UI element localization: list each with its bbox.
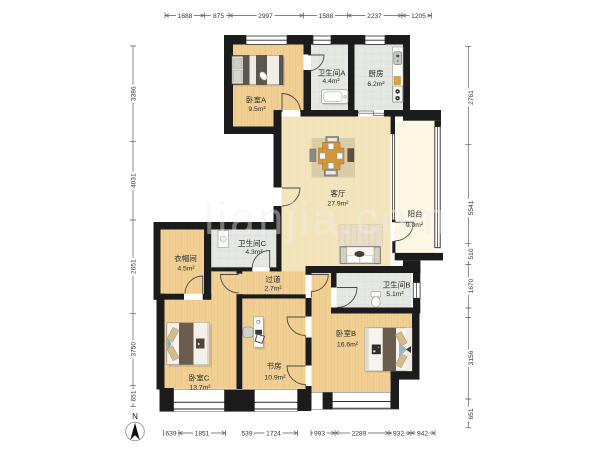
- svg-text:2237: 2237: [367, 13, 382, 20]
- svg-text:4.3m²: 4.3m²: [245, 249, 263, 256]
- svg-text:过道: 过道: [265, 274, 281, 284]
- svg-text:10.9m²: 10.9m²: [264, 375, 286, 382]
- svg-text:2.7m²: 2.7m²: [264, 286, 282, 293]
- svg-text:13.7m²: 13.7m²: [189, 385, 211, 392]
- svg-text:2651: 2651: [130, 259, 137, 274]
- svg-text:卧室B: 卧室B: [336, 328, 356, 338]
- svg-text:1670: 1670: [468, 278, 475, 293]
- svg-text:4031: 4031: [130, 173, 137, 188]
- svg-text:16.6m²: 16.6m²: [337, 342, 359, 349]
- svg-text:875: 875: [213, 13, 224, 20]
- svg-text:客厅: 客厅: [330, 188, 346, 198]
- svg-text:9.0m²: 9.0m²: [406, 222, 424, 229]
- svg-text:6.2m²: 6.2m²: [367, 81, 385, 88]
- svg-text:4.4m²: 4.4m²: [322, 78, 340, 85]
- svg-text:3156: 3156: [468, 350, 475, 365]
- svg-text:993: 993: [314, 431, 325, 438]
- svg-text:942: 942: [417, 431, 428, 438]
- svg-text:3750: 3750: [130, 342, 137, 357]
- svg-text:衣帽间: 衣帽间: [174, 253, 197, 263]
- svg-text:27.9m²: 27.9m²: [327, 201, 349, 208]
- svg-text:卧室C: 卧室C: [189, 373, 210, 383]
- svg-text:1851: 1851: [195, 431, 210, 438]
- svg-text:阳台: 阳台: [407, 209, 423, 219]
- svg-text:5541: 5541: [468, 200, 475, 215]
- svg-text:651: 651: [130, 390, 137, 401]
- svg-text:5.1m²: 5.1m²: [386, 291, 404, 298]
- svg-text:3386: 3386: [130, 86, 137, 101]
- svg-text:书房: 书房: [266, 361, 281, 371]
- svg-text:N: N: [132, 412, 138, 421]
- svg-text:卫生间A: 卫生间A: [318, 68, 347, 78]
- svg-text:卫生间C: 卫生间C: [238, 238, 267, 248]
- svg-text:9.5m²: 9.5m²: [248, 106, 266, 113]
- svg-text:2997: 2997: [258, 13, 273, 20]
- svg-text:1688: 1688: [178, 13, 193, 20]
- svg-text:卧室A: 卧室A: [246, 95, 267, 105]
- svg-text:2289: 2289: [352, 431, 367, 438]
- svg-text:932: 932: [393, 431, 404, 438]
- svg-text:厨房: 厨房: [368, 68, 383, 78]
- svg-text:卫生间B: 卫生间B: [383, 280, 411, 290]
- svg-text:1205: 1205: [411, 13, 426, 20]
- svg-text:2761: 2761: [468, 90, 475, 105]
- svg-text:539: 539: [241, 431, 252, 438]
- svg-text:4.5m²: 4.5m²: [177, 266, 195, 273]
- svg-text:1724: 1724: [266, 431, 281, 438]
- svg-text:651: 651: [468, 408, 475, 419]
- svg-text:639: 639: [165, 431, 176, 438]
- svg-text:1588: 1588: [319, 13, 334, 20]
- svg-text:510: 510: [468, 248, 475, 259]
